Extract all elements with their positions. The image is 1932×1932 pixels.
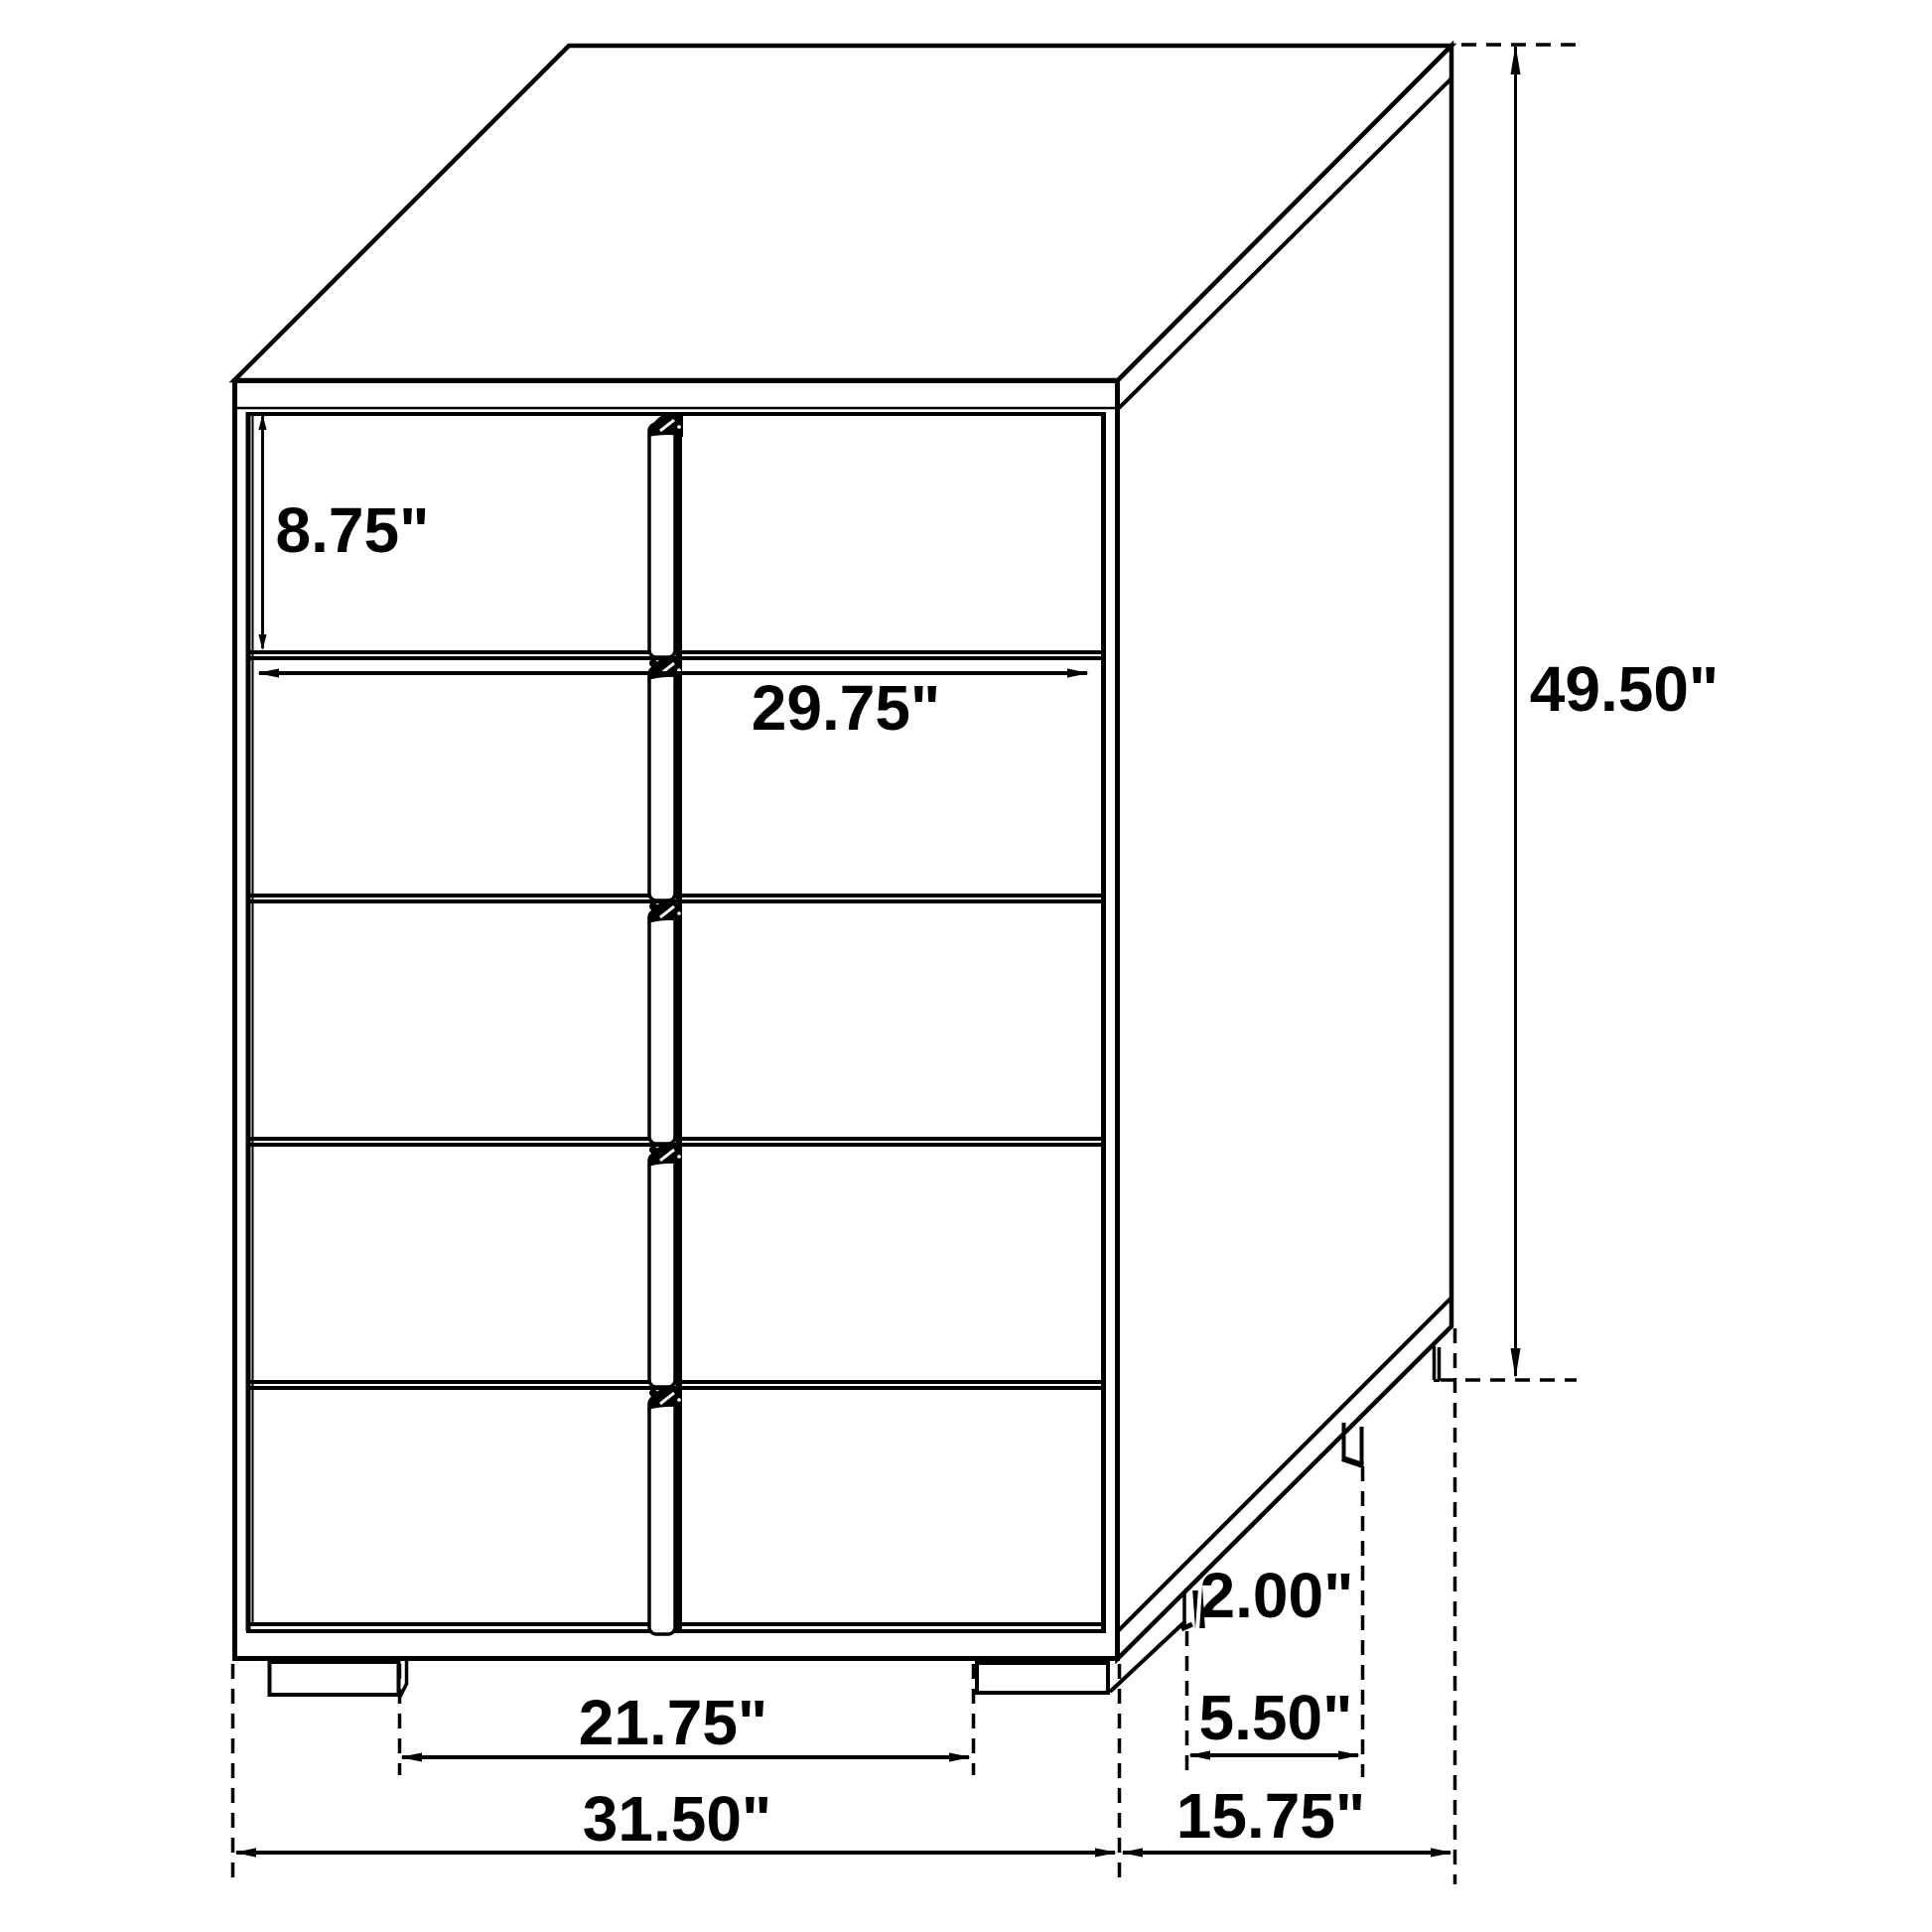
- svg-text:2.00": 2.00": [1200, 1560, 1354, 1631]
- svg-text:8.75": 8.75": [276, 494, 430, 566]
- svg-text:5.50": 5.50": [1199, 1682, 1353, 1753]
- svg-text:31.50": 31.50": [583, 1783, 772, 1855]
- svg-text:21.75": 21.75": [579, 1687, 768, 1758]
- svg-text:29.75": 29.75": [752, 672, 941, 744]
- svg-text:15.75": 15.75": [1176, 1780, 1366, 1852]
- svg-text:49.50": 49.50": [1530, 653, 1720, 725]
